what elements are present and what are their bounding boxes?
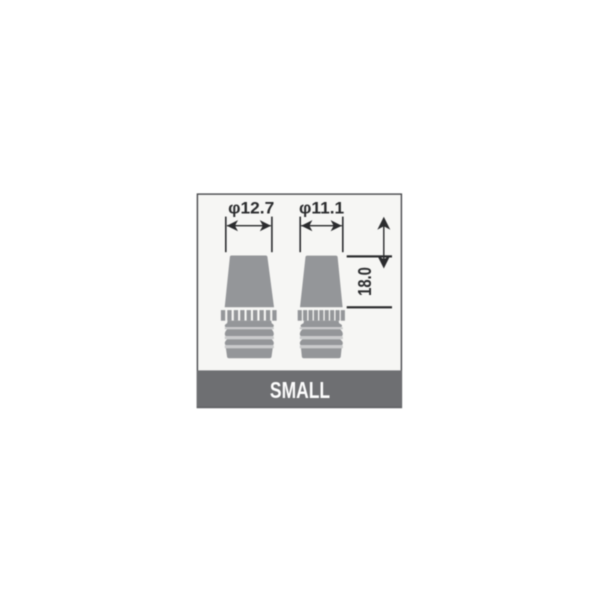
svg-text:φ12.7: φ12.7: [228, 197, 274, 217]
svg-text:18.0: 18.0: [354, 267, 375, 296]
svg-text:φ11.1: φ11.1: [299, 197, 345, 217]
svg-text:SMALL: SMALL: [270, 379, 330, 404]
